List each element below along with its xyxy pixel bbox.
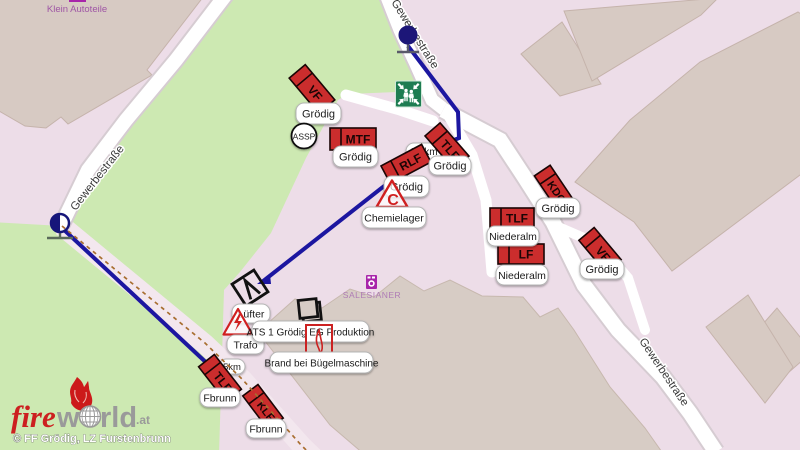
svg-text:Niederalm: Niederalm — [498, 270, 546, 282]
svg-text:SALESIANER: SALESIANER — [343, 290, 401, 300]
svg-text:Grödig: Grödig — [433, 161, 466, 173]
svg-text:Fbrunn: Fbrunn — [203, 393, 236, 405]
svg-text:w: w — [56, 402, 80, 434]
svg-text:Niederalm: Niederalm — [489, 231, 537, 243]
svg-text:Grödig: Grödig — [339, 152, 372, 164]
svg-text:Fbrunn: Fbrunn — [249, 424, 282, 436]
svg-text:TLF: TLF — [506, 212, 528, 226]
svg-text:© FF Grödig, LZ Furstenbrunn: © FF Grödig, LZ Furstenbrunn — [13, 433, 171, 445]
svg-text:Grödig: Grödig — [541, 203, 574, 215]
svg-text:ATS 1 Grödig EG Produktion: ATS 1 Grödig EG Produktion — [247, 328, 375, 339]
svg-text:LF: LF — [519, 248, 534, 262]
svg-text:Brand bei Bügelmaschine: Brand bei Bügelmaschine — [265, 359, 379, 370]
svg-text:Chemielager: Chemielager — [364, 213, 424, 225]
svg-text:ASSP: ASSP — [293, 132, 316, 142]
svg-text:Grödig: Grödig — [302, 109, 335, 121]
svg-text:.at: .at — [136, 413, 150, 427]
svg-text:Trafo: Trafo — [233, 340, 257, 352]
svg-text:Klein Autoteile: Klein Autoteile — [47, 4, 107, 15]
svg-text:Grödig: Grödig — [585, 264, 618, 276]
svg-text:fire: fire — [11, 399, 56, 434]
svg-text:rld: rld — [100, 402, 137, 434]
svg-text:C: C — [387, 192, 399, 209]
svg-text:MTF: MTF — [346, 133, 371, 147]
